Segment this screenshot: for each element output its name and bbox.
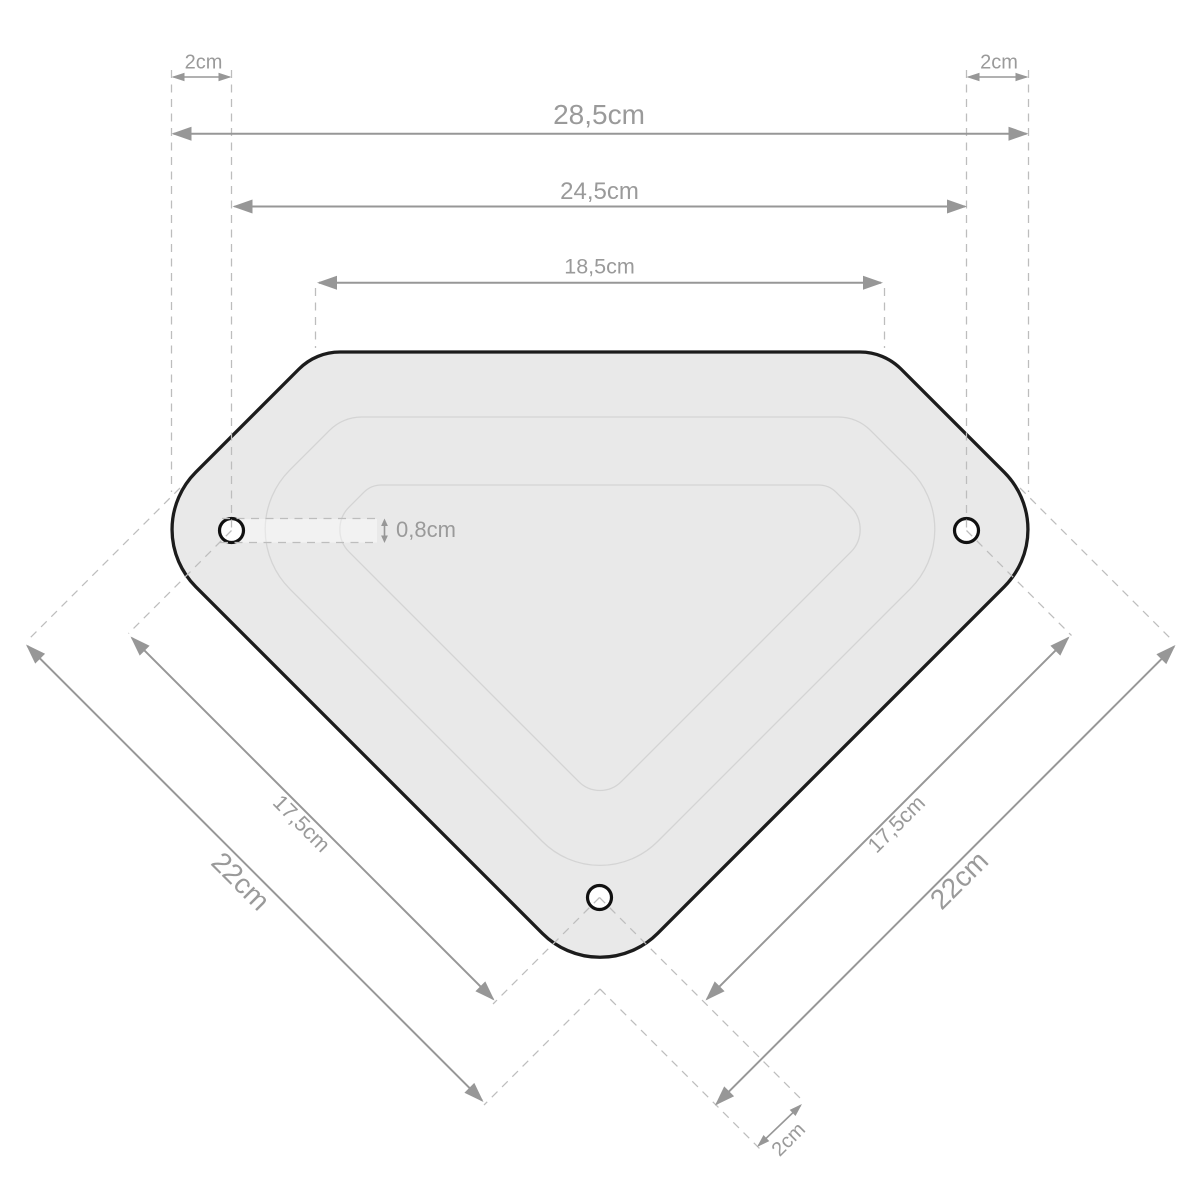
svg-text:24,5cm: 24,5cm — [560, 178, 639, 205]
svg-text:0,8cm: 0,8cm — [396, 517, 456, 542]
svg-text:18,5cm: 18,5cm — [564, 255, 635, 279]
svg-text:2cm: 2cm — [185, 52, 223, 74]
svg-text:28,5cm: 28,5cm — [553, 99, 645, 130]
svg-text:2cm: 2cm — [980, 52, 1018, 74]
